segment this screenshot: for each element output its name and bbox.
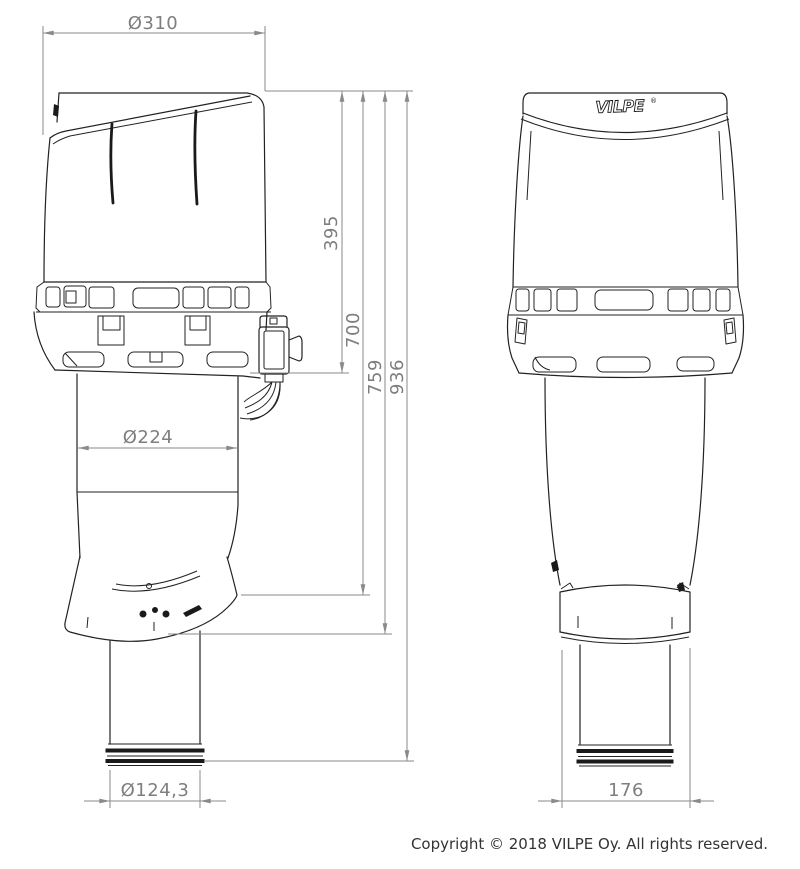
exhaust-pipe-side [106,631,205,766]
housing-left-edge [34,312,55,370]
louver-slot [46,287,60,307]
hood-front [513,93,738,287]
flashing-pin-hole [147,584,152,589]
duct-clip-mark [551,560,559,572]
duct-clip-bracket [561,583,573,589]
flashing-screw [152,607,158,613]
flashing-front [560,585,690,644]
dim-label-hood-height: 395 [321,215,342,251]
louver-slot [235,287,249,308]
louver-band-right [738,287,743,315]
dim-label-total-height: 936 [387,359,408,395]
louver-slot [716,289,730,311]
copyright-text: Copyright © 2018 VILPE Oy. All rights re… [411,835,768,853]
louver-slot [516,289,529,311]
cable [240,382,280,420]
housing-vent-slot [207,352,248,367]
hood-logo-mark [53,104,59,117]
pipe-ring [106,749,205,753]
louver-slot [183,287,204,308]
body-groove [527,131,531,200]
louver-band-front [508,287,743,315]
louver-slot [64,286,86,307]
pipe-ring [106,759,205,763]
body-groove [719,131,723,200]
louver-inner-clip [66,291,76,303]
flashing-tick [87,617,88,628]
flashing-band-bottom [560,632,690,639]
box-screw [270,318,277,324]
louver-band-left [36,282,44,312]
duct-front [545,378,705,592]
louver-slot [557,289,577,311]
housing-vent-slot [677,357,714,371]
right-view-front: VILPE ® [508,93,744,766]
duct-left-edge [77,374,80,558]
vilpe-logo: VILPE [595,96,645,117]
housing-vent-tab [150,352,162,362]
louver-slot [595,290,653,310]
hood-side [44,93,266,282]
flashing-outline [65,556,237,641]
duct-right-edge [228,377,238,558]
technical-drawing: VILPE ® Ø310 Ø224 Ø124,3 176 [0,0,800,869]
housing-vent-wedge [535,357,550,370]
dim-label-flashing-width: 176 [608,780,644,801]
housing-vent-slot [63,352,104,367]
dim-label-duct-diameter: Ø224 [123,427,174,448]
pipe-ring [577,749,674,753]
box-inner [264,331,284,369]
louver-band-side [36,282,271,312]
dim-label-height-to-flashing-bottom: 759 [365,359,386,395]
connection-box [259,316,302,382]
housing-clip-inner [190,316,206,330]
flashing-band-outline [560,585,690,632]
flashing-vent-slot [183,605,202,617]
louver-slot [133,288,179,308]
dim-label-hood-diameter: Ø310 [128,13,179,34]
fan-housing-side [34,312,267,378]
housing-right-edge [732,315,744,373]
body-left-edge [513,116,523,287]
dim-label-height-to-flashing-top: 700 [343,312,364,348]
housing-vent-slot [597,357,650,372]
registered-mark: ® [650,97,657,105]
louver-slot [668,289,688,311]
flashing-lip [116,571,197,586]
housing-left-edge [508,315,520,373]
box-knob [289,336,302,361]
exhaust-pipe-front [577,645,674,766]
hood-slant-rim [53,102,252,144]
roof-flashing-side [65,556,237,641]
louver-band-right [266,282,271,312]
housing-bottom-edge [55,370,260,378]
body-right-edge [727,116,738,287]
louver-band-left [508,287,513,315]
louver-slot [693,289,710,311]
housing-clip-inner [726,322,733,334]
housing-clip-inner [518,322,525,334]
pipe-ring [577,760,674,764]
flashing-screw [140,611,147,618]
hood-slant-edge [50,96,250,138]
hood-groove [195,111,197,204]
housing-bottom-edge [519,373,732,378]
duct-left-edge [545,378,560,585]
flashing-screw [163,611,170,618]
box-bottom-tab [265,374,283,382]
fan-housing-front [508,315,744,378]
hood-groove [111,124,113,203]
housing-vent-wedge [65,353,77,366]
hood-left-edge [44,138,50,282]
louver-slot [89,287,114,308]
duct-right-edge [690,378,705,585]
brand-logo: VILPE ® [595,96,657,117]
louver-slot [208,287,231,308]
technical-drawing-page: VILPE ® Ø310 Ø224 Ø124,3 176 [0,0,800,869]
dim-label-pipe-diameter: Ø124,3 [121,780,190,801]
housing-clip-inner [103,316,120,330]
flashing-band-rim [561,637,689,644]
hood-outline [59,93,266,282]
louver-slot [534,289,551,311]
housing-vent-slot [128,352,183,367]
insulated-duct-side [77,374,238,558]
